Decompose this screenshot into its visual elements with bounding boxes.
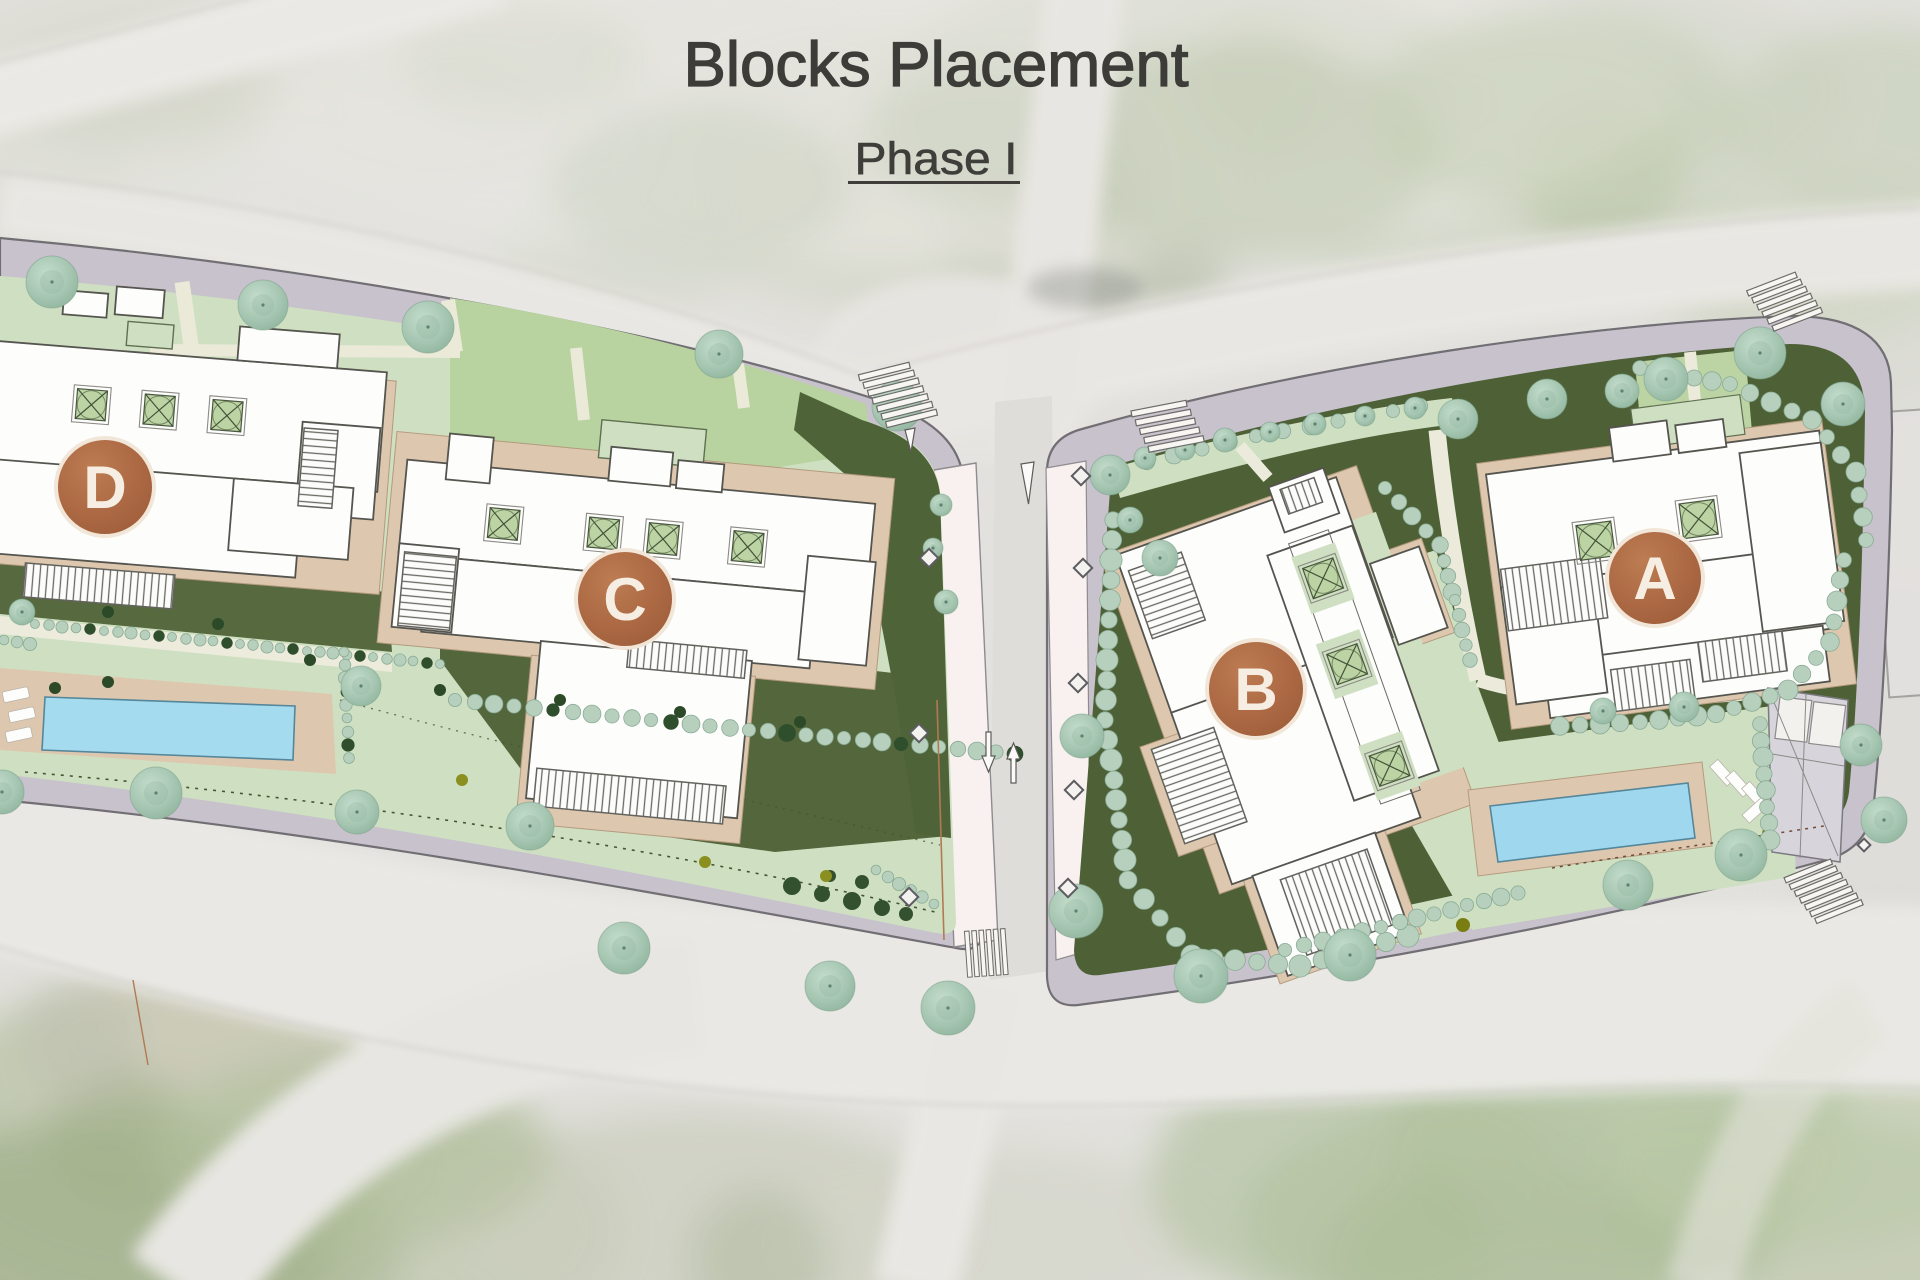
svg-text:B: B bbox=[1234, 656, 1277, 723]
svg-text:D: D bbox=[83, 454, 126, 521]
svg-text:Blocks Placement: Blocks Placement bbox=[684, 30, 1189, 100]
svg-text:Phase I: Phase I bbox=[855, 133, 1018, 184]
svg-text:C: C bbox=[603, 566, 646, 633]
svg-text:A: A bbox=[1633, 545, 1676, 612]
